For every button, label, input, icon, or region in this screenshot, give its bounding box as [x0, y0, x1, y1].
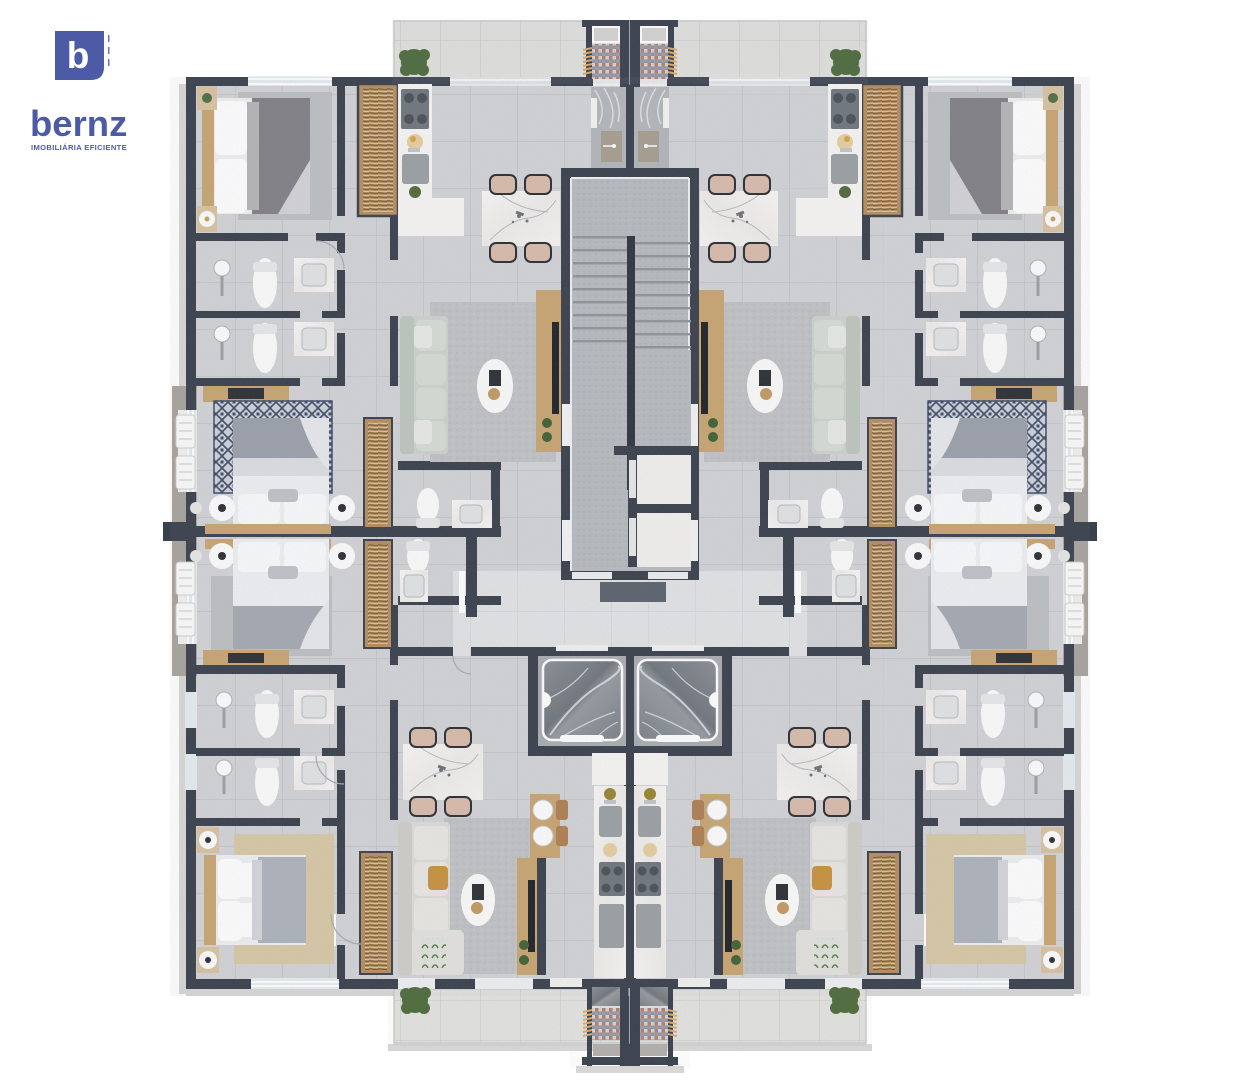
- svg-text:b: b: [67, 35, 90, 76]
- svg-text:IMOBILIÁRIA EFICIENTE: IMOBILIÁRIA EFICIENTE: [31, 143, 127, 152]
- svg-text:bernz: bernz: [30, 103, 127, 144]
